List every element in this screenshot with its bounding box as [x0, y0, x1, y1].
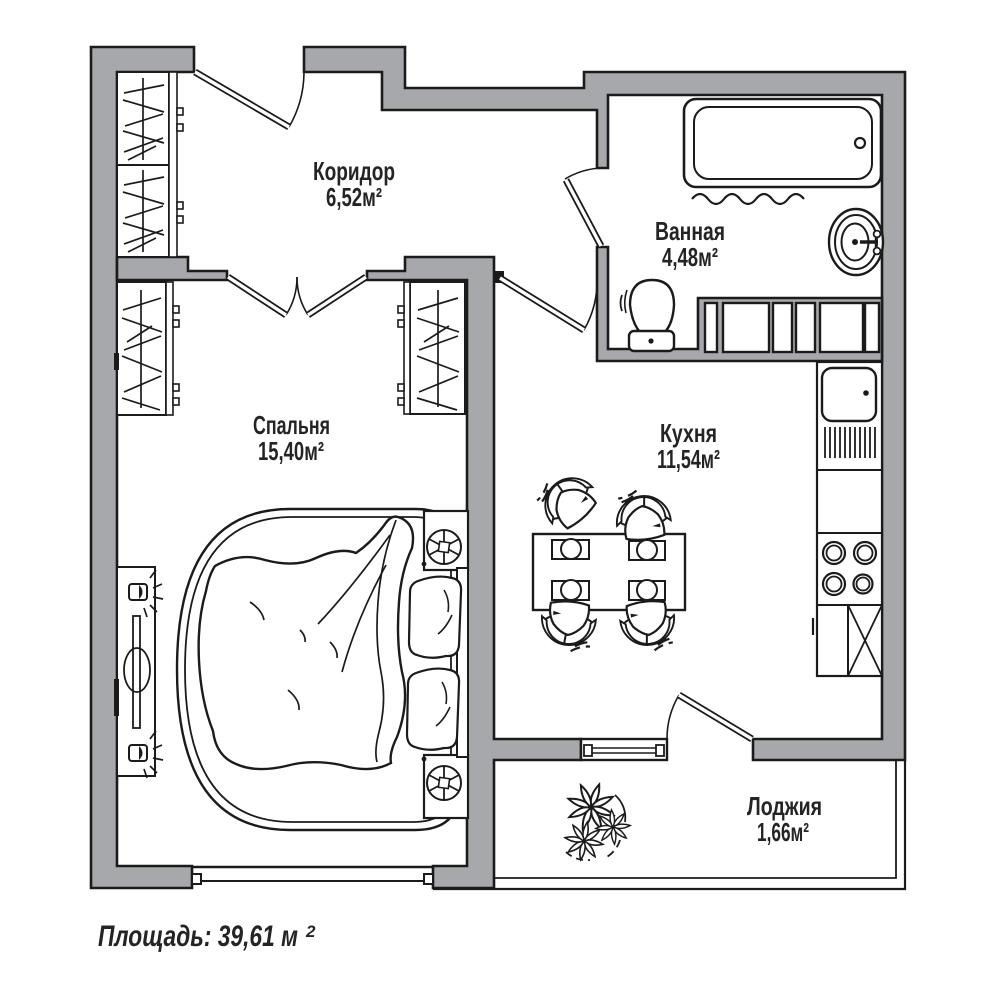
svg-text:15,40м²: 15,40м²: [258, 436, 324, 466]
svg-text:Площадь: 39,61 м: Площадь: 39,61 м: [98, 920, 298, 953]
svg-text:4,48м²: 4,48м²: [662, 242, 718, 272]
svg-text:11,54м²: 11,54м²: [657, 444, 720, 474]
svg-text:1,66м²: 1,66м²: [757, 817, 809, 847]
svg-text:2: 2: [305, 922, 316, 941]
svg-text:6,52м²: 6,52м²: [326, 182, 382, 212]
